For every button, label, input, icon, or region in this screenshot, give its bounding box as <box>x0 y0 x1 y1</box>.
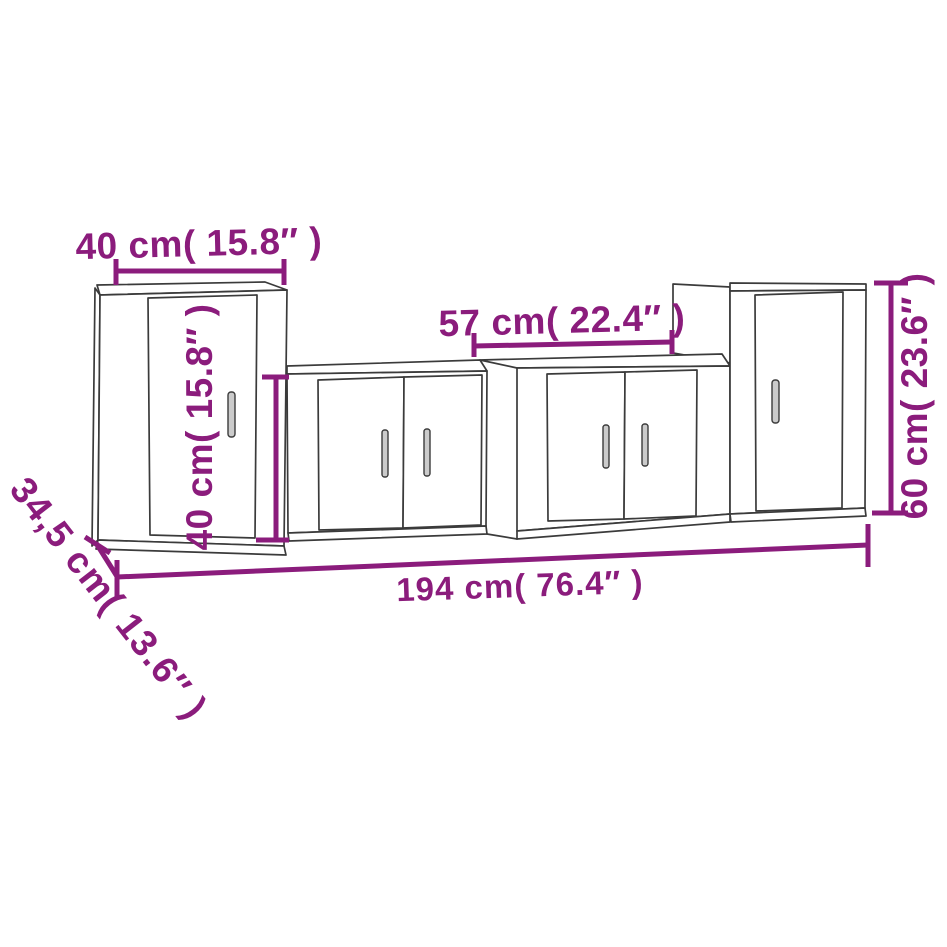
bench1-handle-left <box>382 430 388 477</box>
dim-label-top-width: 40 cm( 15.8″ ) <box>75 220 323 267</box>
bench1-handle-right <box>424 429 430 476</box>
bench1-door-right <box>403 375 482 528</box>
product-dimension-image: 40 cm( 15.8″ ) 40 cm( 15.8″ ) 57 cm( 22.… <box>0 0 947 947</box>
left-cabinet-handle <box>228 392 235 437</box>
dimension-diagram-svg: 40 cm( 15.8″ ) 40 cm( 15.8″ ) 57 cm( 22.… <box>0 0 947 947</box>
bench2-handle-left <box>603 425 609 468</box>
dim-top-width: 40 cm( 15.8″ ) <box>75 220 323 285</box>
tv-bench-2 <box>480 354 730 539</box>
dim-right-height: 60 cm( 23.6″ ) <box>872 273 935 520</box>
dim-line <box>474 342 672 346</box>
dim-label-inner-height: 40 cm( 15.8″ ) <box>179 304 220 551</box>
bench2-door-left <box>547 372 625 521</box>
right-wall-cabinet <box>730 283 866 522</box>
dim-middle-width: 57 cm( 22.4″ ) <box>438 297 686 357</box>
bench1-door-left <box>318 377 404 530</box>
right-cabinet-handle <box>772 380 779 423</box>
dim-label-right-height: 60 cm( 23.6″ ) <box>894 273 935 520</box>
bench2-handle-right <box>642 424 648 466</box>
dim-label-total-width: 194 cm( 76.4″ ) <box>396 563 644 609</box>
tv-bench-1 <box>287 360 517 541</box>
right-cabinet-door <box>755 292 843 511</box>
bench2-door-right <box>624 370 697 519</box>
dim-label-middle-width: 57 cm( 22.4″ ) <box>438 297 686 344</box>
base-bridge-line <box>487 534 517 539</box>
